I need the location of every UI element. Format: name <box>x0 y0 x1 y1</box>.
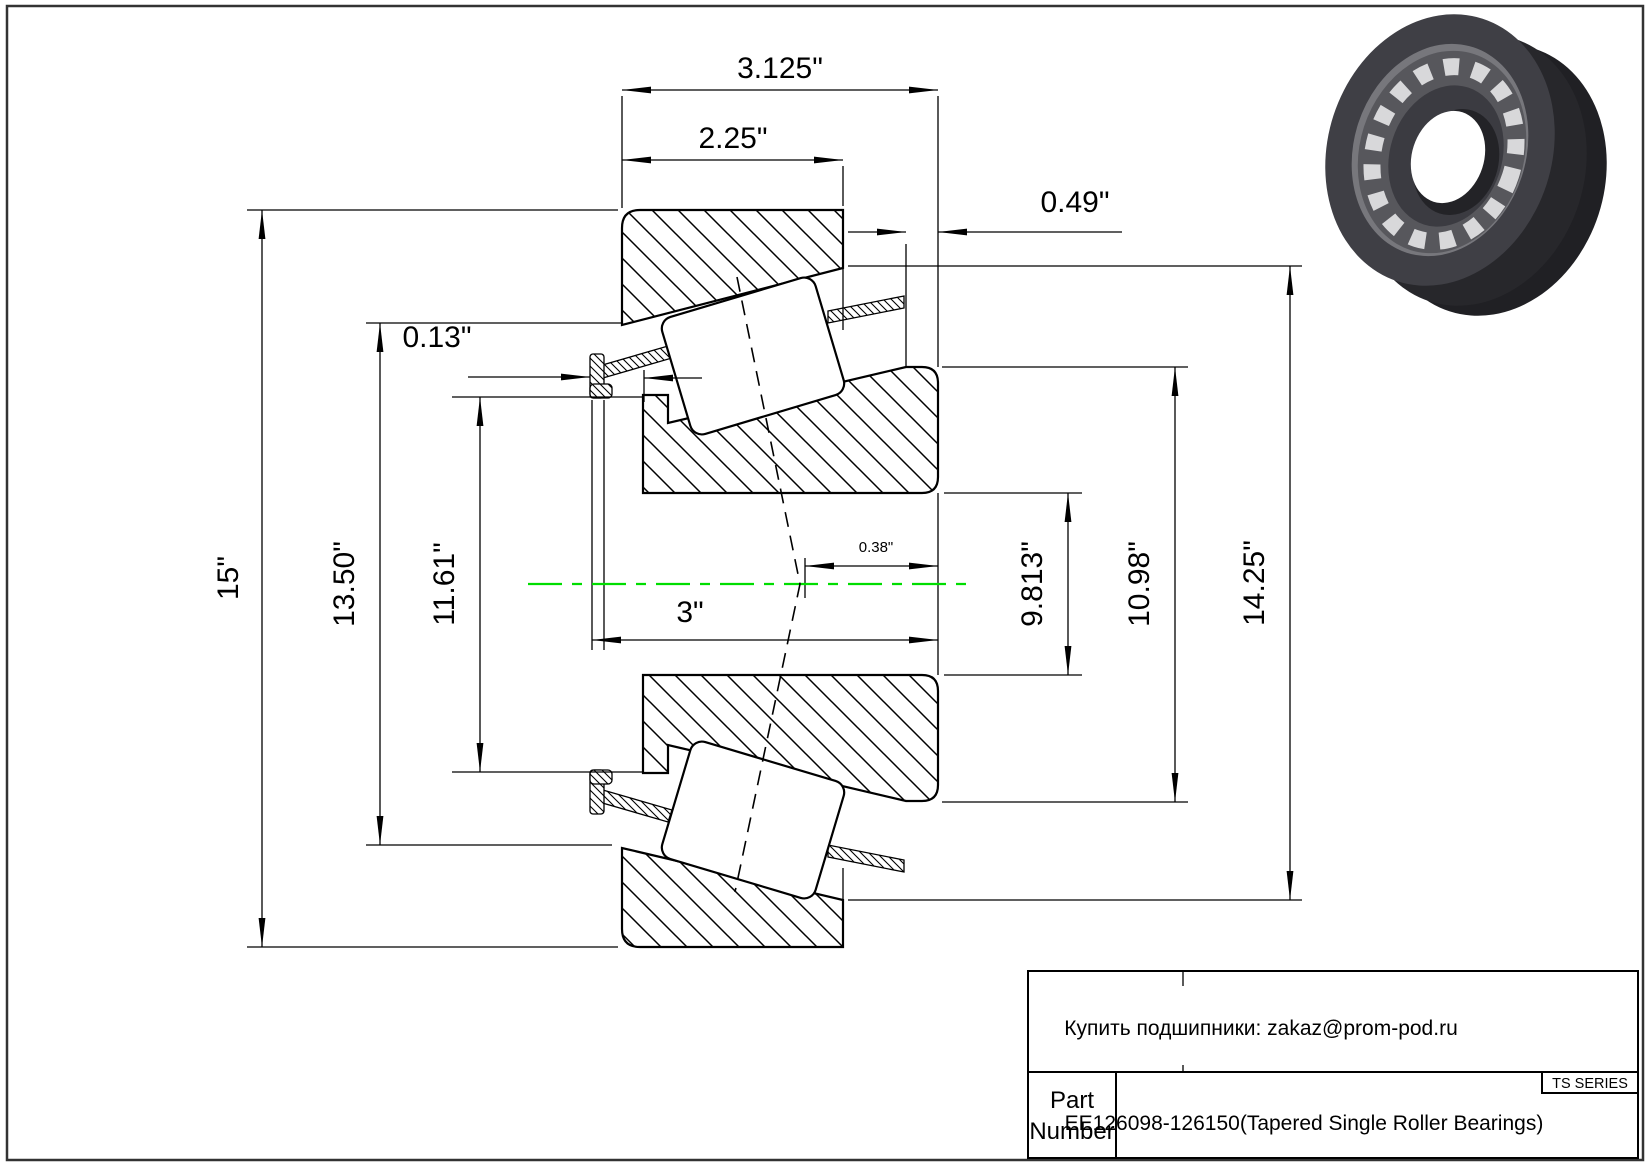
dim-label-od: 15" <box>212 556 245 600</box>
cage-lip-top-foot <box>590 384 612 398</box>
dim-label-overall-width: 3.125" <box>737 52 823 85</box>
dim-label-cup-front-dia: 13.50" <box>328 541 361 627</box>
title-block: Купить подшипники: zakaz@prom-pod.ru TS … <box>1028 971 1638 1158</box>
supplier-note: Купить подшипники: zakaz@prom-pod.ru <box>1064 1017 1458 1040</box>
drawing-page: 3.125" 2.25" 0.49" 0.13" 15" 13.50" 11.6… <box>0 0 1649 1167</box>
bearing-3d-render <box>1291 0 1641 346</box>
dim-label-bore: 9.813" <box>1016 541 1049 627</box>
series-badge: TS SERIES <box>1552 1076 1628 1092</box>
cage-strip-top-right <box>828 296 904 323</box>
part-number-value: EE126098-126150(Tapered Single Roller Be… <box>1065 1112 1544 1135</box>
dim-label-lip: 0.13" <box>402 321 471 354</box>
dim-label-cone-od: 10.98" <box>1123 541 1156 627</box>
dim-label-center-offset: 0.38" <box>859 539 894 556</box>
bearing-drawing-svg: 3.125" 2.25" 0.49" 0.13" 15" 13.50" 11.6… <box>0 0 1649 1167</box>
part-label-line1: Part <box>1050 1087 1094 1114</box>
dim-label-cup-back-dia: 14.25" <box>1238 540 1271 626</box>
bearing-cross-section <box>590 210 938 947</box>
dim-label-cone-rib-dia: 11.61" <box>428 542 461 626</box>
cage-strip-bottom-right <box>828 845 904 872</box>
dim-label-standout: 0.49" <box>1040 186 1109 219</box>
dim-label-cup-width: 2.25" <box>698 122 767 155</box>
dim-label-cone-width: 3" <box>676 596 703 629</box>
